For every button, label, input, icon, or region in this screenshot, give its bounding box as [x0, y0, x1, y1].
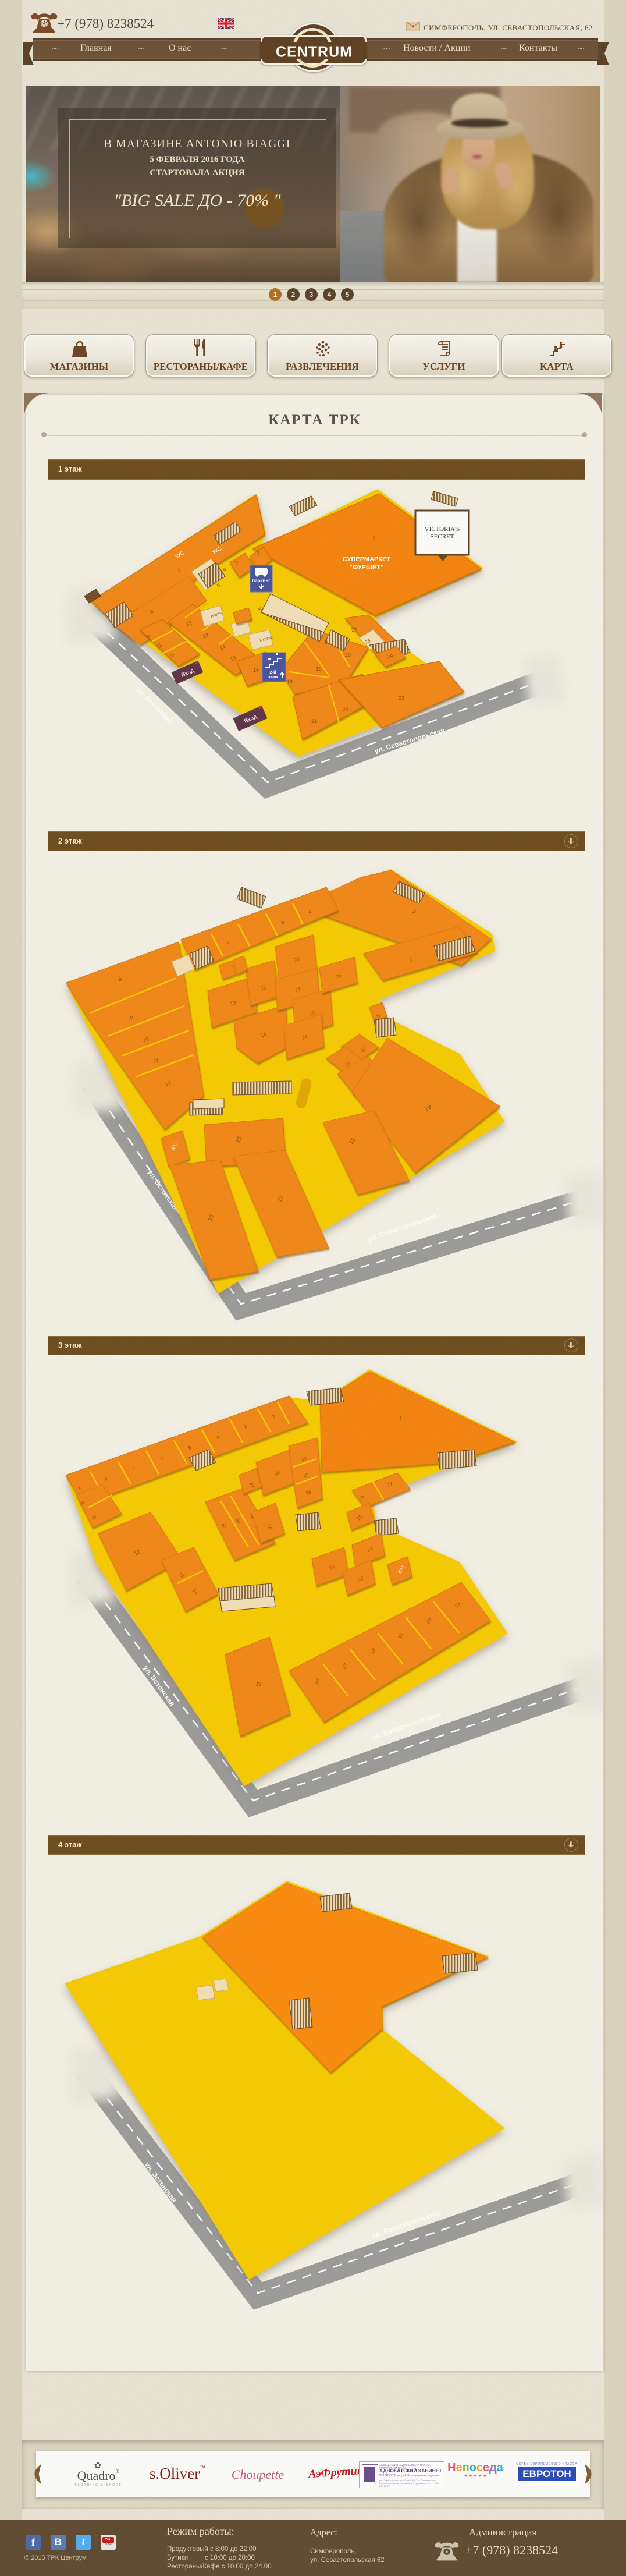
svg-text:1: 1 [373, 535, 376, 540]
svg-text:этаж: этаж [268, 674, 278, 679]
svg-text:18: 18 [287, 679, 293, 685]
svg-text:VICTORIA'S: VICTORIA'S [425, 526, 460, 533]
svg-text:22: 22 [343, 707, 348, 713]
svg-text:16: 16 [253, 667, 259, 673]
svg-text:19: 19 [316, 666, 322, 672]
svg-text:20: 20 [345, 652, 351, 658]
svg-text:СУПЕРМАРКЕТ: СУПЕРМАРКЕТ [343, 556, 391, 563]
svg-text:паркинг: паркинг [252, 578, 271, 583]
svg-text:"ФУРШЕТ": "ФУРШЕТ" [350, 564, 384, 571]
svg-text:21: 21 [311, 718, 317, 724]
svg-text:SECRET: SECRET [431, 533, 454, 540]
svg-text:23: 23 [399, 695, 404, 701]
